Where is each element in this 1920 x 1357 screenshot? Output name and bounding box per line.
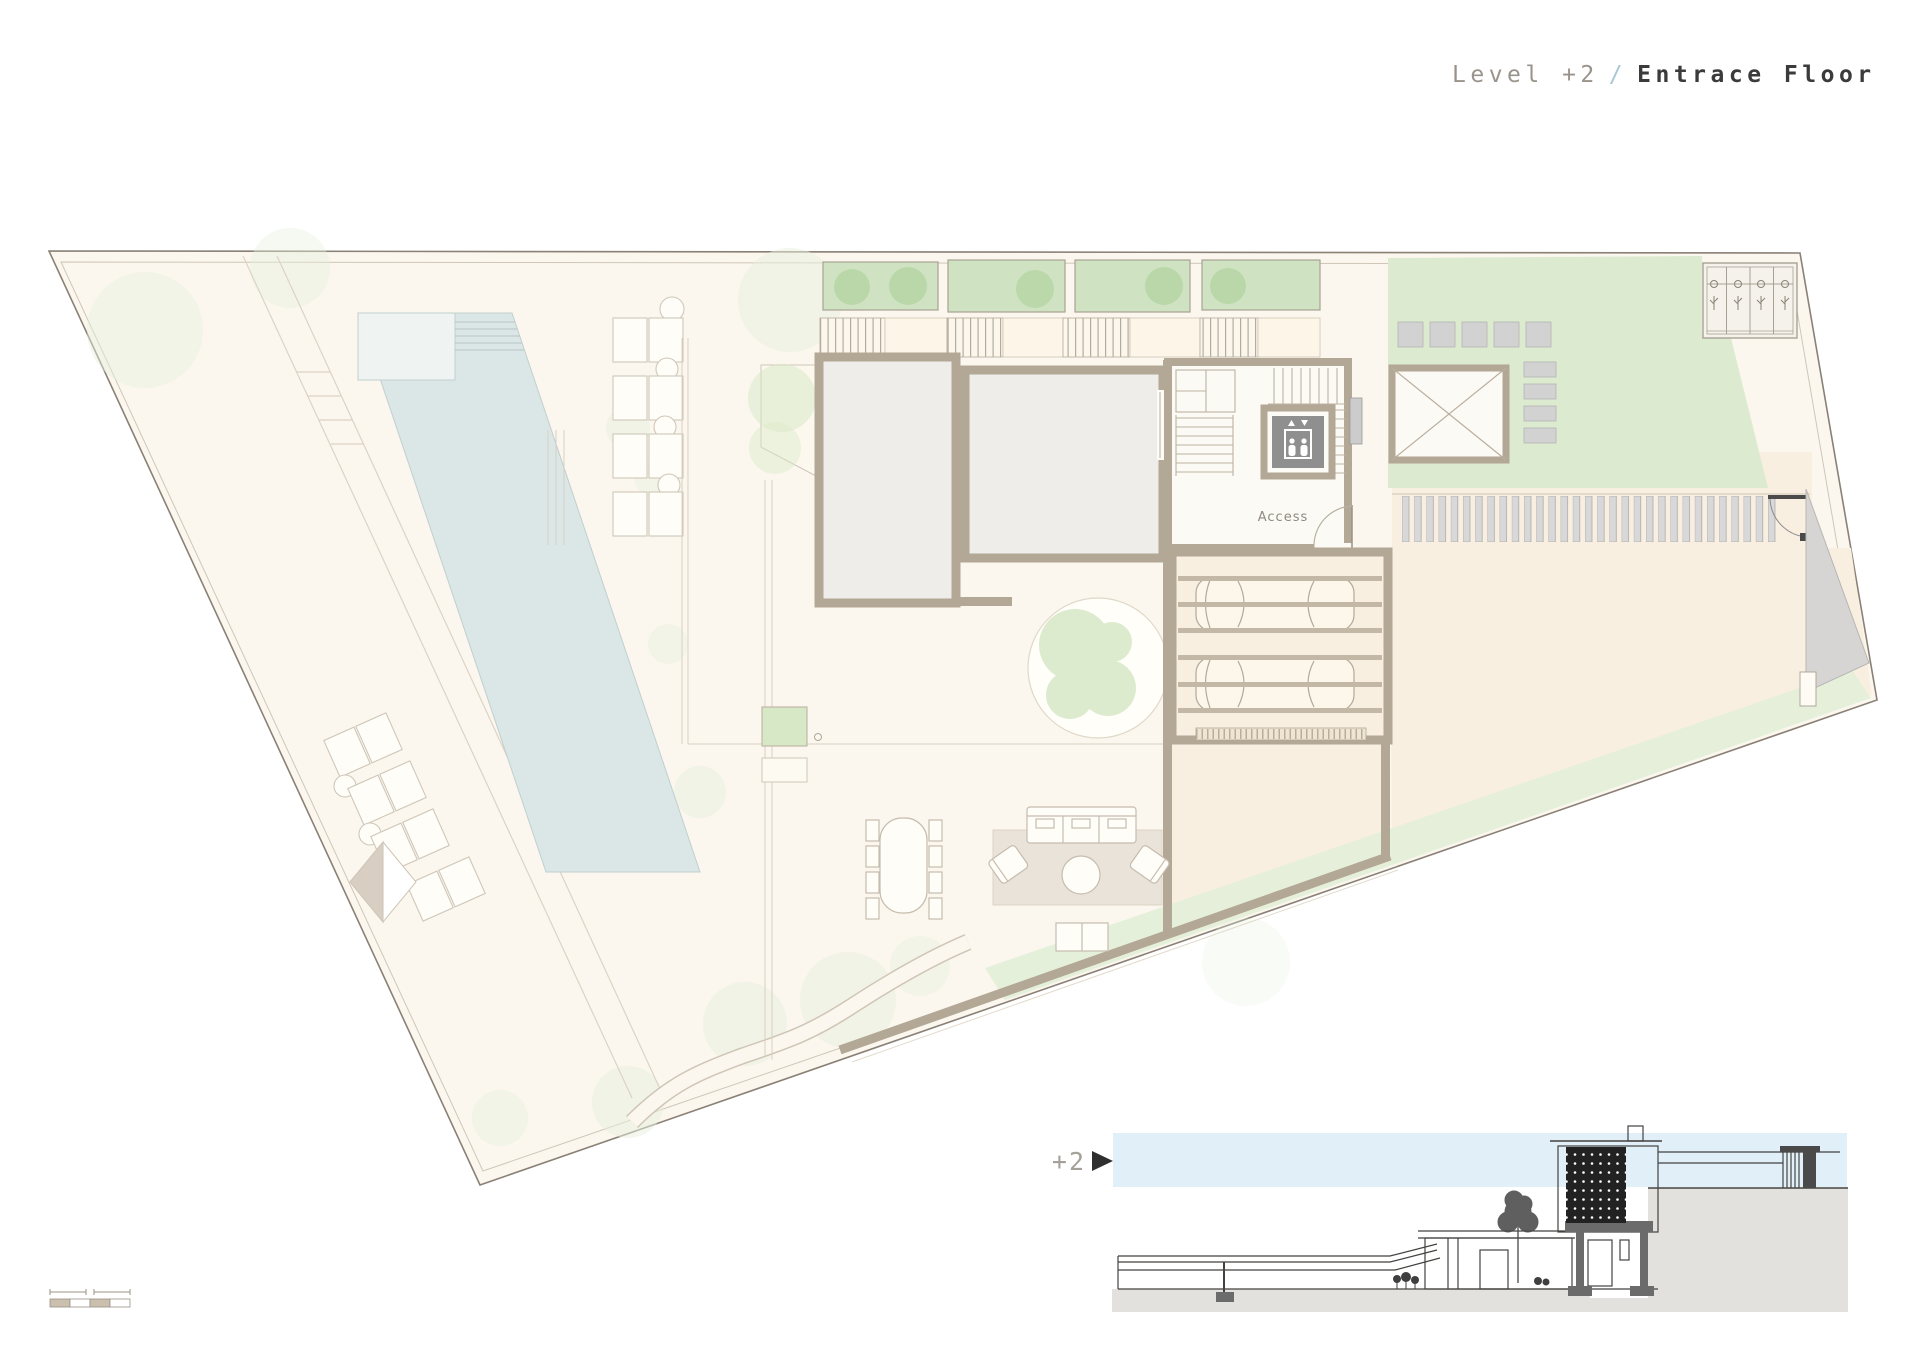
access-room: Access [1168, 362, 1362, 553]
section-shrubs [1393, 1272, 1550, 1289]
garage [1172, 552, 1388, 740]
driveway-stripes [1402, 496, 1780, 542]
pergola-planter-box [1703, 263, 1797, 338]
room-main [965, 370, 1163, 558]
courtyard-tree [1028, 598, 1168, 738]
access-label: Access [1258, 510, 1309, 525]
elevator [1264, 408, 1332, 476]
sun-loungers-poolside [613, 297, 684, 536]
right-arrow-icon [1092, 1151, 1113, 1171]
section-drawing: +2 [1052, 1126, 1848, 1312]
scale-bar [50, 1289, 130, 1307]
room-west [819, 357, 956, 603]
skylight-room [1392, 368, 1506, 460]
louvre-strip [820, 318, 1320, 357]
dining-table [880, 818, 927, 913]
side-door-panel [1350, 398, 1362, 444]
section-ground [1648, 1188, 1848, 1312]
gate-pillar [1800, 672, 1816, 706]
level-marker-label: +2 [1052, 1147, 1086, 1176]
drawing-sheet: Level +2 / Entrace Floor [0, 0, 1920, 1357]
pool-shelf [358, 313, 455, 380]
section-sky-band [1113, 1133, 1847, 1187]
coffee-table [1062, 856, 1100, 894]
section-tree [1498, 1191, 1538, 1283]
site-plan-svg: Access [0, 0, 1920, 1357]
